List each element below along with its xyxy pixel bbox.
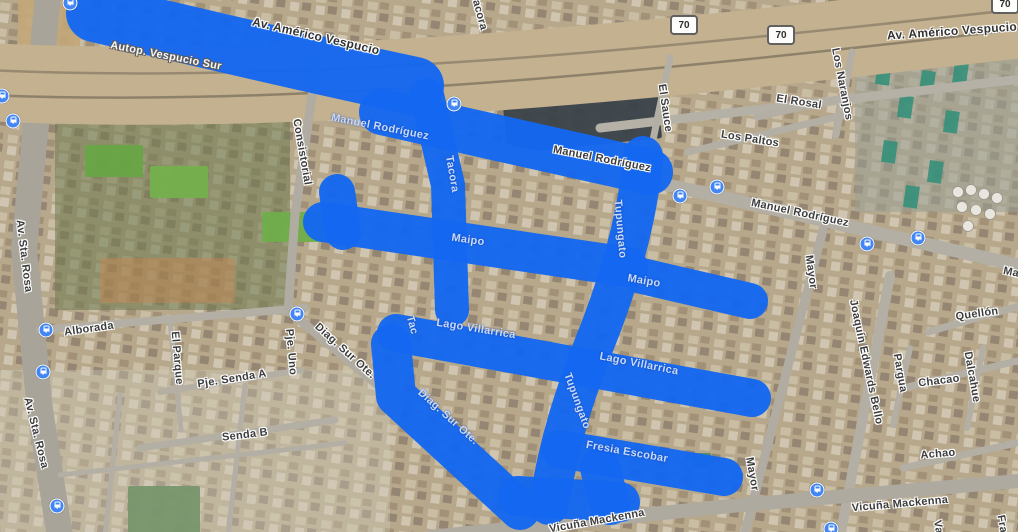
bus-stop-icon[interactable] xyxy=(63,0,78,11)
bus-glyph xyxy=(40,368,46,375)
highlighted-route-tupungato-foot[interactable] xyxy=(600,468,610,505)
map-canvas xyxy=(0,0,1018,532)
bus-glyph xyxy=(814,486,820,493)
bus-stop-icon[interactable] xyxy=(860,237,875,252)
storage-tank xyxy=(971,205,982,216)
bus-stop-icon[interactable] xyxy=(810,483,825,498)
storage-tank xyxy=(966,185,977,196)
bus-glyph xyxy=(828,525,834,532)
bus-stop-icon[interactable] xyxy=(673,189,688,204)
bus-stop-icon[interactable] xyxy=(36,365,51,380)
storage-tank xyxy=(979,189,990,200)
bus-glyph xyxy=(714,183,720,190)
bus-glyph xyxy=(43,326,49,333)
bus-glyph xyxy=(0,92,5,99)
bus-glyph xyxy=(54,502,60,509)
bus-stop-icon[interactable] xyxy=(290,307,305,322)
bus-stop-icon[interactable] xyxy=(0,89,10,104)
storage-tank xyxy=(957,202,968,213)
bus-stop-icon[interactable] xyxy=(6,114,21,129)
bus-glyph xyxy=(677,192,683,199)
bus-stop-icon[interactable] xyxy=(710,180,725,195)
highlighted-route-maipo-east[interactable] xyxy=(642,276,750,301)
bus-glyph xyxy=(864,240,870,247)
storage-tank xyxy=(985,209,996,220)
bus-stop-icon[interactable] xyxy=(911,231,926,246)
bus-glyph xyxy=(915,234,921,241)
bus-stop-icon[interactable] xyxy=(447,97,462,112)
bus-stop-icon[interactable] xyxy=(824,522,839,532)
storage-tank xyxy=(963,221,974,232)
patch-court-2 xyxy=(150,166,208,198)
storage-tank xyxy=(992,193,1003,204)
satellite-map[interactable]: Manuel RodríguezTacoraMaipoMaipoLago Vil… xyxy=(0,0,1018,532)
bus-stop-icon[interactable] xyxy=(50,499,65,514)
bus-stop-icon[interactable] xyxy=(39,323,54,338)
patch-dirt-field xyxy=(100,258,235,303)
bus-glyph xyxy=(294,310,300,317)
patch-court-1 xyxy=(85,145,143,177)
bus-glyph xyxy=(10,117,16,124)
bus-glyph xyxy=(67,0,73,6)
bus-glyph xyxy=(451,100,457,107)
storage-tank xyxy=(953,187,964,198)
